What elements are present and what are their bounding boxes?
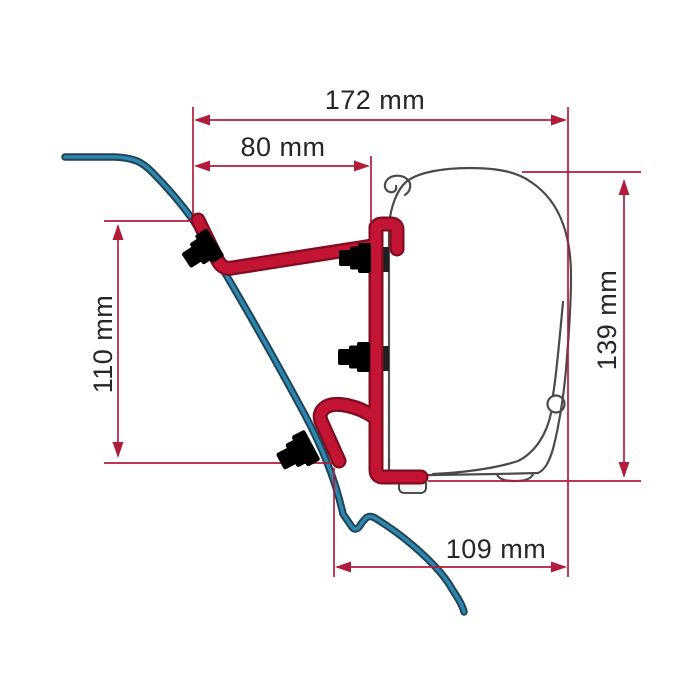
arrow-right-icon [551,115,567,126]
diagram-canvas: 172 mm 80 mm 110 mm 139 mm 109 mm [0,0,700,700]
dimension-bottom-width: 109 mm [334,468,567,577]
arrow-up-icon [113,224,124,240]
arrow-left-icon [335,562,351,573]
arrow-left-icon [194,115,210,126]
dimension-label-left-height: 110 mm [88,295,118,394]
dimension-label-top-width: 172 mm [325,85,426,115]
arrow-left-icon [194,161,210,172]
arrow-down-icon [113,442,124,458]
arrow-right-icon [354,161,370,172]
awning-case-bottom-bump [497,474,533,481]
dimension-label-upper-width: 80 mm [240,132,325,162]
awning-case-outline [389,168,571,475]
awning-case [381,168,571,481]
dimension-label-bottom-width: 109 mm [446,534,547,564]
arrow-up-icon [619,179,630,195]
dimension-upper-width: 80 mm [194,132,371,223]
arrow-down-icon [619,462,630,478]
dimension-label-right-height: 139 mm [592,270,622,371]
bracket-dimension-diagram: 172 mm 80 mm 110 mm 139 mm 109 mm [0,0,700,700]
arrow-right-icon [551,562,567,573]
bracket-bolt-lower [338,342,370,372]
